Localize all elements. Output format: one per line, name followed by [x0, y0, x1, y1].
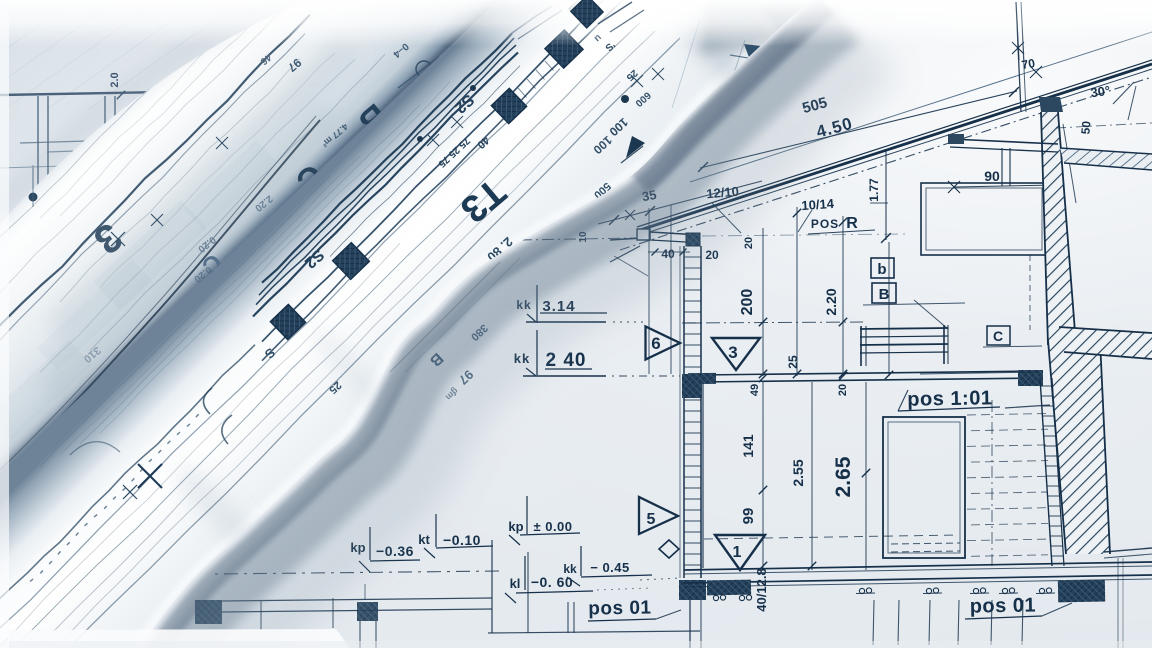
svg-text:50: 50	[1078, 120, 1093, 135]
svg-text:−0.10: −0.10	[443, 532, 481, 548]
svg-text:POS: POS	[811, 217, 839, 231]
svg-text:20: 20	[837, 384, 849, 396]
svg-text:C: C	[993, 328, 1003, 344]
svg-text:20: 20	[743, 237, 755, 249]
svg-text:99: 99	[740, 508, 757, 525]
svg-text:pos 01: pos 01	[970, 594, 1037, 617]
svg-text:5: 5	[647, 511, 656, 528]
svg-text:1.77: 1.77	[867, 178, 881, 202]
svg-text:40/12.8: 40/12.8	[754, 568, 769, 611]
svg-text:−0. 60: −0. 60	[531, 574, 573, 590]
svg-text:1: 1	[733, 544, 742, 561]
svg-text:2.65: 2.65	[832, 456, 855, 497]
svg-text:2.55: 2.55	[790, 459, 806, 486]
svg-text:kp: kp	[508, 519, 523, 534]
svg-text:kl: kl	[510, 576, 521, 591]
svg-text:90: 90	[984, 168, 1000, 184]
svg-text:± 0.00: ± 0.00	[533, 519, 572, 534]
svg-text:70: 70	[1021, 56, 1037, 72]
svg-text:6: 6	[651, 334, 660, 353]
svg-text:kt: kt	[418, 532, 430, 547]
svg-text:R: R	[846, 215, 858, 232]
svg-text:200: 200	[739, 289, 756, 316]
svg-text:25: 25	[786, 355, 800, 369]
svg-text:2.20: 2.20	[823, 288, 839, 315]
svg-text:B: B	[879, 286, 890, 303]
svg-text:141: 141	[740, 434, 756, 458]
svg-text:49: 49	[749, 384, 761, 396]
svg-text:2.0: 2.0	[109, 72, 121, 87]
svg-text:30°: 30°	[1090, 83, 1112, 101]
svg-text:10/14: 10/14	[801, 196, 835, 213]
svg-text:b: b	[877, 261, 886, 278]
svg-text:3: 3	[728, 343, 737, 362]
svg-text:− 0.45: − 0.45	[590, 560, 630, 575]
svg-text:pos 01: pos 01	[588, 597, 652, 619]
